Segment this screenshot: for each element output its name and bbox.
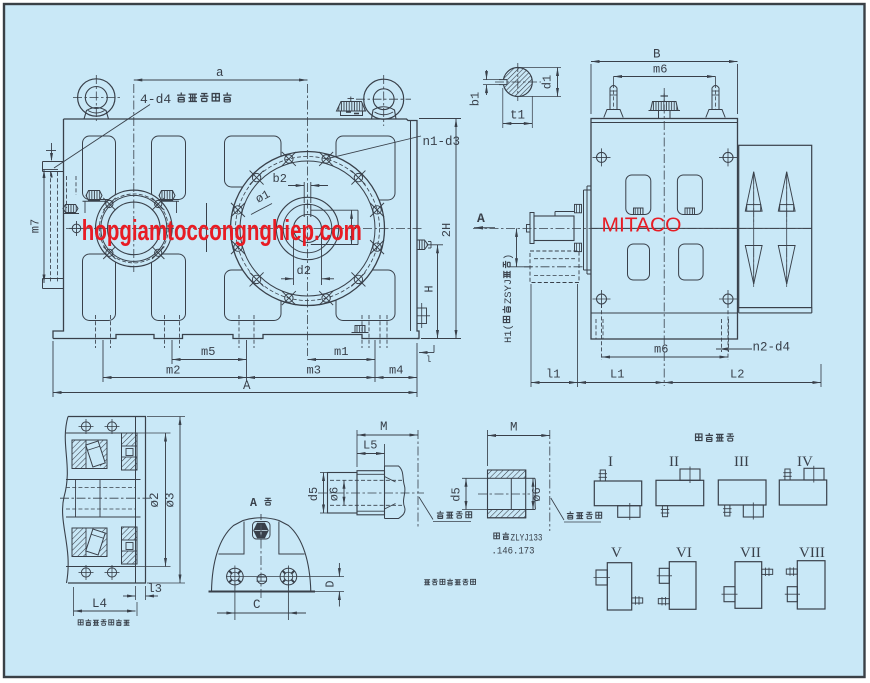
svg-text:2H: 2H [440,223,454,237]
svg-text:m4: m4 [389,364,403,378]
svg-text:d5: d5 [450,487,464,501]
svg-text:C: C [253,598,261,612]
svg-text:n2-d4: n2-d4 [753,341,791,355]
svg-text:ZSYJ: ZSYJ [503,279,515,304]
svg-text:MITACO: MITACO [602,215,682,237]
svg-text:A: A [477,211,485,226]
svg-text:): ) [503,254,515,260]
svg-text:VII: VII [740,545,761,561]
svg-text:m7: m7 [29,219,43,233]
svg-text:ø6: ø6 [530,487,544,501]
svg-text:A: A [250,497,257,510]
svg-text:d2: d2 [297,264,311,278]
svg-text:a: a [216,66,224,80]
svg-text:L4: L4 [92,597,107,611]
svg-text:b2: b2 [273,172,287,186]
svg-text:A: A [243,379,251,393]
svg-text:VI: VI [676,545,692,561]
svg-text:ø2: ø2 [148,492,162,507]
svg-text:M: M [510,421,518,435]
svg-text:m5: m5 [201,345,215,359]
svg-text:l1: l1 [546,368,560,382]
svg-text:l: l [426,355,431,365]
svg-text:H: H [423,285,437,292]
svg-text:D: D [325,580,338,587]
svg-text:d1: d1 [541,75,555,89]
svg-text:m1: m1 [334,345,348,359]
svg-text:ZLYJ133: ZLYJ133 [511,534,543,545]
svg-text:IV: IV [797,454,813,470]
svg-text:III: III [734,454,749,470]
svg-text:d5: d5 [307,487,321,501]
svg-text:V: V [611,545,622,561]
svg-text:L2: L2 [730,368,744,382]
svg-text:b1: b1 [469,92,483,106]
svg-text:m6: m6 [654,343,668,357]
svg-text:I: I [608,454,613,470]
svg-text:II: II [669,454,679,470]
svg-text:ø6: ø6 [328,487,342,501]
svg-text:m2: m2 [166,364,180,378]
svg-text:L1: L1 [610,368,624,382]
svg-text:B: B [653,48,661,62]
svg-text:hopgiamtoccongnghiep.com: hopgiamtoccongnghiep.com [82,215,362,247]
svg-text:m6: m6 [653,63,667,77]
svg-text:m3: m3 [307,364,321,378]
svg-text:L5: L5 [363,439,377,453]
svg-text:l3: l3 [148,582,162,596]
svg-text:VIII: VIII [799,545,825,561]
svg-text:H1(: H1( [503,324,515,343]
svg-text:.146.173: .146.173 [492,547,535,558]
svg-text:t1: t1 [510,109,525,123]
svg-text:4-d4: 4-d4 [140,92,171,107]
svg-text:n1-d3: n1-d3 [423,135,461,149]
svg-text:ø3: ø3 [164,492,178,507]
svg-text:M: M [380,420,388,434]
